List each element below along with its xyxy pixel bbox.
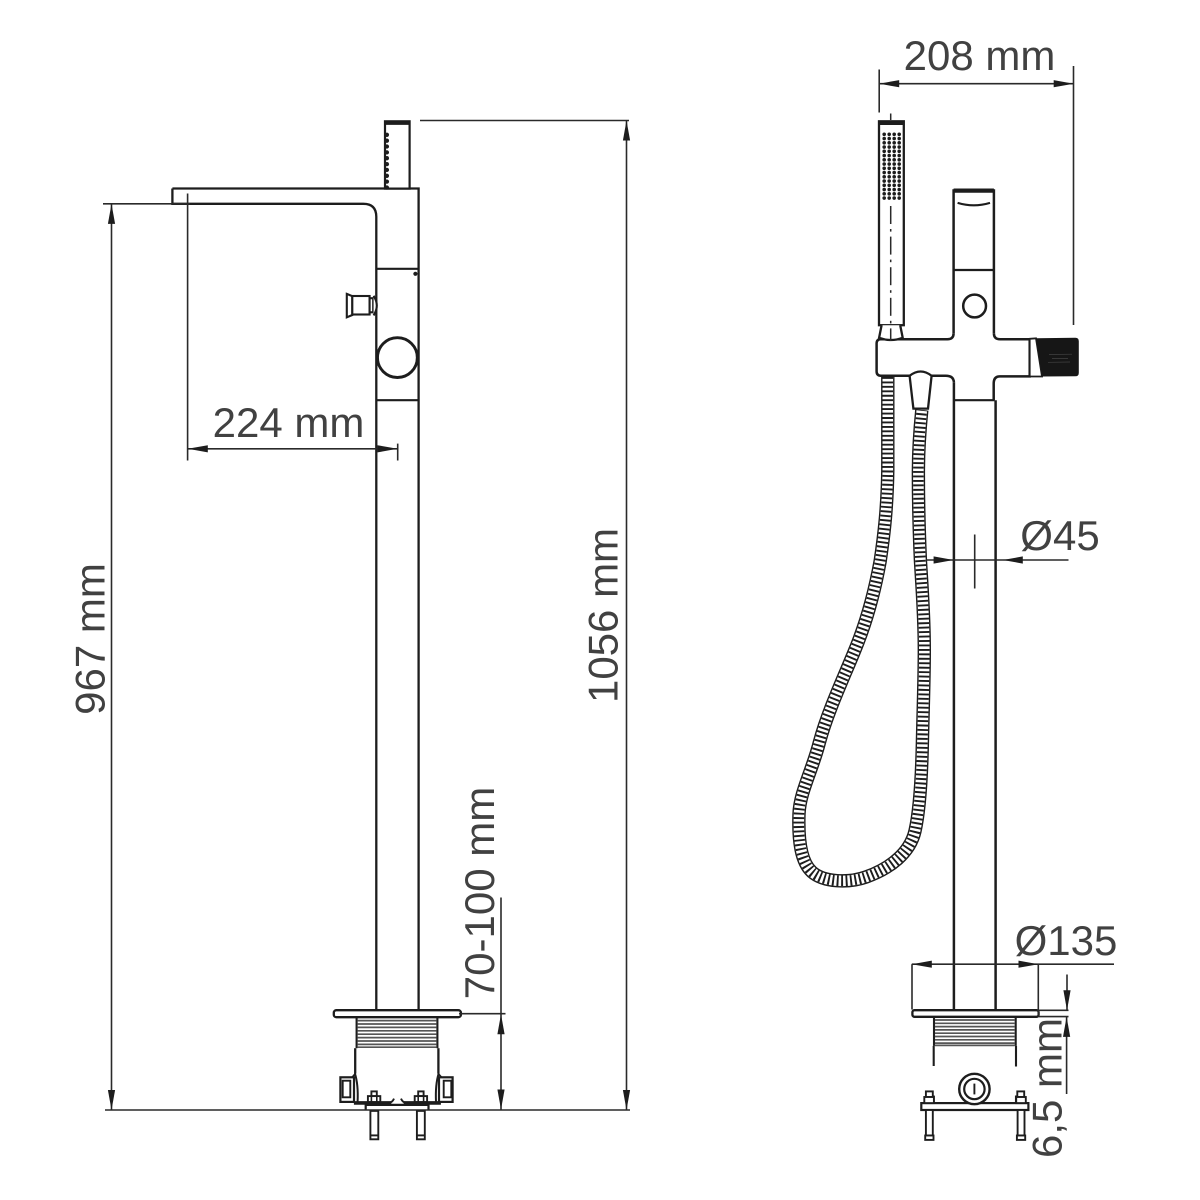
svg-text:6,5 mm: 6,5 mm: [1024, 1018, 1071, 1158]
svg-text:224 mm: 224 mm: [213, 399, 365, 446]
svg-text:70-100 mm: 70-100 mm: [456, 787, 503, 999]
svg-text:Ø45: Ø45: [1020, 512, 1099, 559]
svg-text:1056 mm: 1056 mm: [580, 528, 627, 703]
svg-text:208 mm: 208 mm: [904, 32, 1056, 79]
svg-text:Ø135: Ø135: [1015, 917, 1118, 964]
svg-text:967 mm: 967 mm: [67, 563, 114, 715]
